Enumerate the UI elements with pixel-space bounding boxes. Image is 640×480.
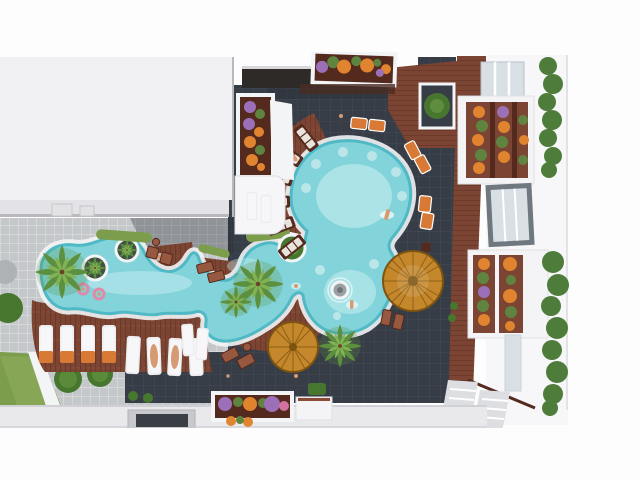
bottom-white-planter-edge bbox=[296, 397, 332, 420]
upper-flower-balcony bbox=[458, 96, 534, 184]
fountain-island bbox=[328, 278, 352, 302]
top-planter bbox=[312, 52, 395, 86]
balcony-walkway bbox=[270, 100, 294, 180]
thatch-umbrella-large bbox=[383, 251, 443, 311]
framed-bush-square bbox=[420, 84, 454, 128]
glass-balustrade bbox=[505, 335, 521, 391]
bottom-gray-planter bbox=[128, 410, 195, 430]
roof-edge-band bbox=[0, 200, 229, 216]
planter-shadow-band bbox=[300, 84, 395, 94]
left-building bbox=[0, 57, 313, 234]
render-canvas bbox=[0, 0, 640, 480]
left-roof bbox=[0, 57, 233, 200]
side-table bbox=[243, 343, 251, 351]
roof-vent bbox=[80, 206, 94, 216]
planter-island-2 bbox=[116, 239, 138, 261]
lower-flower-balcony bbox=[468, 250, 548, 338]
sky-white-band bbox=[0, 0, 640, 52]
foreground-white bbox=[0, 428, 640, 480]
thatch-umbrella-small bbox=[268, 322, 318, 372]
roof-vent bbox=[52, 204, 72, 216]
aerial-resort-render bbox=[0, 0, 640, 480]
skylight-windows bbox=[481, 62, 524, 97]
bottom-flower-planter bbox=[213, 393, 292, 427]
gray-framed-window bbox=[485, 183, 534, 247]
left-balcony-planter bbox=[238, 95, 273, 177]
side-table bbox=[152, 238, 159, 245]
white-terrace bbox=[235, 176, 285, 234]
